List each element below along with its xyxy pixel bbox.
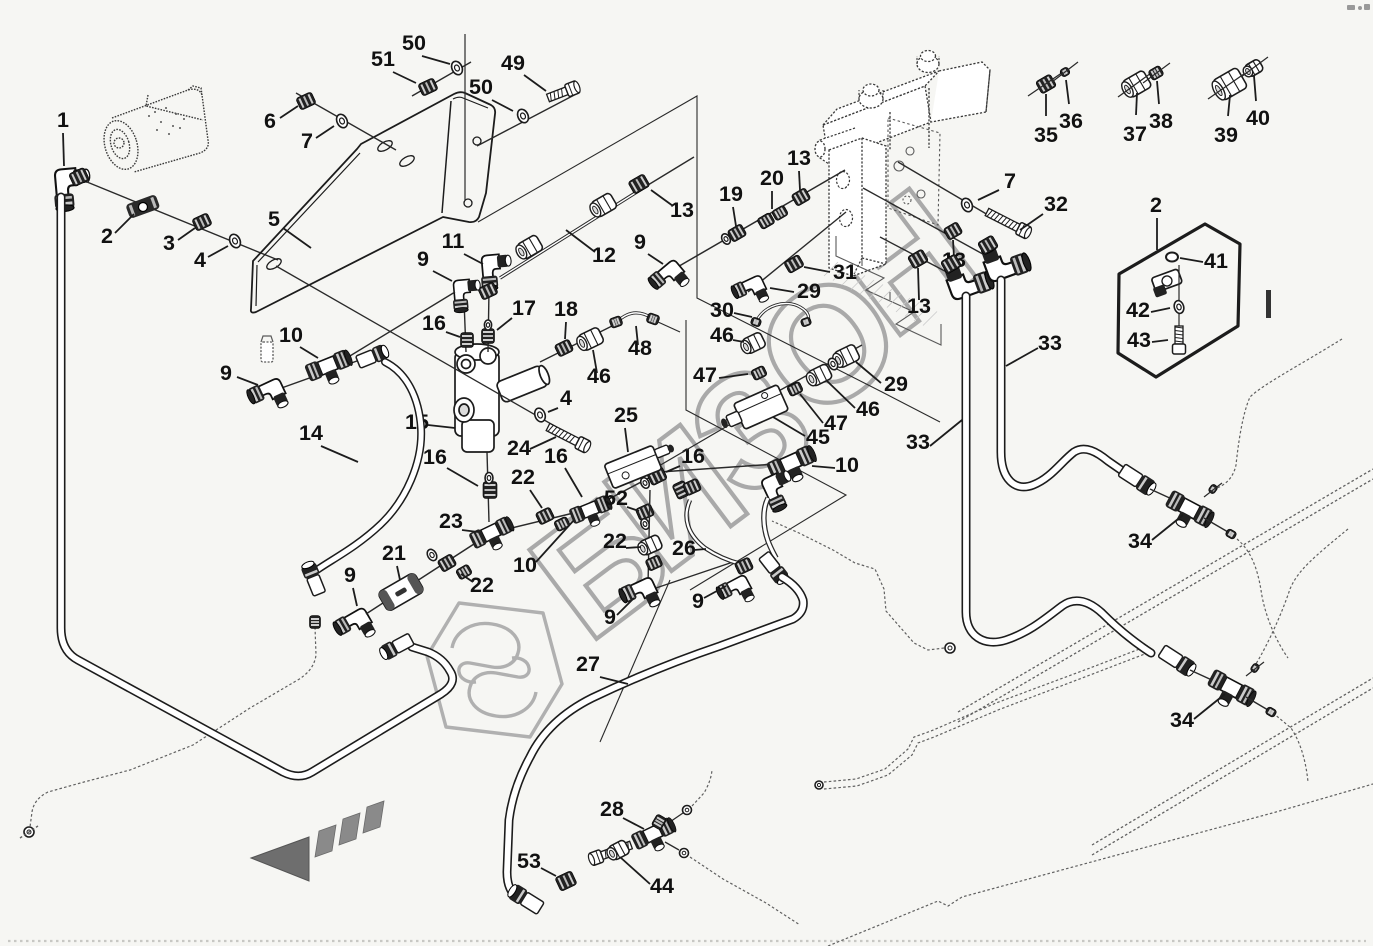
svg-text:6: 6 [264,109,276,133]
svg-text:52: 52 [604,486,628,510]
svg-text:23: 23 [439,509,463,533]
svg-text:46: 46 [856,397,880,421]
svg-text:10: 10 [279,323,303,347]
svg-text:29: 29 [797,279,821,303]
svg-text:4: 4 [560,386,572,410]
svg-text:24: 24 [507,436,531,460]
svg-text:9: 9 [344,563,356,587]
svg-text:4: 4 [194,248,206,272]
svg-text:16: 16 [544,444,568,468]
svg-text:26: 26 [672,536,696,560]
svg-text:20: 20 [760,166,784,190]
svg-text:39: 39 [1214,123,1238,147]
svg-text:51: 51 [371,47,395,71]
svg-text:44: 44 [650,874,674,898]
svg-text:42: 42 [1126,298,1150,322]
svg-text:9: 9 [417,247,429,271]
svg-text:30: 30 [710,298,734,322]
svg-text:7: 7 [1004,169,1016,193]
svg-text:9: 9 [604,605,616,629]
svg-text:27: 27 [576,652,600,676]
svg-text:33: 33 [1038,331,1062,355]
svg-text:47: 47 [693,363,717,387]
svg-text:10: 10 [513,553,537,577]
svg-text:47: 47 [824,411,848,435]
svg-text:22: 22 [511,465,535,489]
svg-text:19: 19 [719,182,743,206]
svg-text:48: 48 [628,336,652,360]
svg-text:53: 53 [517,849,541,873]
svg-text:3: 3 [163,231,175,255]
svg-text:1: 1 [57,108,69,132]
svg-text:32: 32 [1044,192,1068,216]
svg-text:10: 10 [835,453,859,477]
svg-text:34: 34 [1128,529,1152,553]
svg-text:34: 34 [1170,708,1194,732]
svg-text:5: 5 [268,207,280,231]
svg-text:40: 40 [1246,106,1270,130]
svg-text:50: 50 [469,75,493,99]
svg-text:38: 38 [1149,109,1173,133]
svg-text:29: 29 [884,372,908,396]
svg-text:28: 28 [600,797,624,821]
svg-text:33: 33 [906,430,930,454]
svg-text:2: 2 [1150,193,1162,217]
svg-text:46: 46 [710,323,734,347]
svg-text:35: 35 [1034,123,1058,147]
svg-text:11: 11 [442,229,465,253]
svg-text:37: 37 [1123,122,1147,146]
svg-text:12: 12 [592,243,616,267]
svg-text:49: 49 [501,51,525,75]
svg-text:16: 16 [422,311,446,335]
svg-text:9: 9 [220,361,232,385]
svg-text:9: 9 [634,230,646,254]
svg-text:17: 17 [512,296,536,320]
svg-text:16: 16 [681,444,705,468]
svg-text:13: 13 [787,146,811,170]
svg-text:22: 22 [470,573,494,597]
svg-text:25: 25 [614,403,638,427]
svg-text:2: 2 [101,224,113,248]
svg-text:43: 43 [1127,328,1151,352]
svg-text:18: 18 [554,297,578,321]
svg-text:14: 14 [299,421,323,445]
svg-text:21: 21 [382,541,406,565]
svg-text:16: 16 [423,445,447,469]
svg-text:9: 9 [692,589,704,613]
svg-text:7: 7 [301,129,313,153]
svg-text:46: 46 [587,364,611,388]
svg-text:22: 22 [603,529,627,553]
svg-text:31: 31 [833,260,857,284]
svg-text:50: 50 [402,31,426,55]
svg-text:41: 41 [1204,249,1228,273]
svg-text:36: 36 [1059,109,1083,133]
svg-text:13: 13 [670,198,694,222]
